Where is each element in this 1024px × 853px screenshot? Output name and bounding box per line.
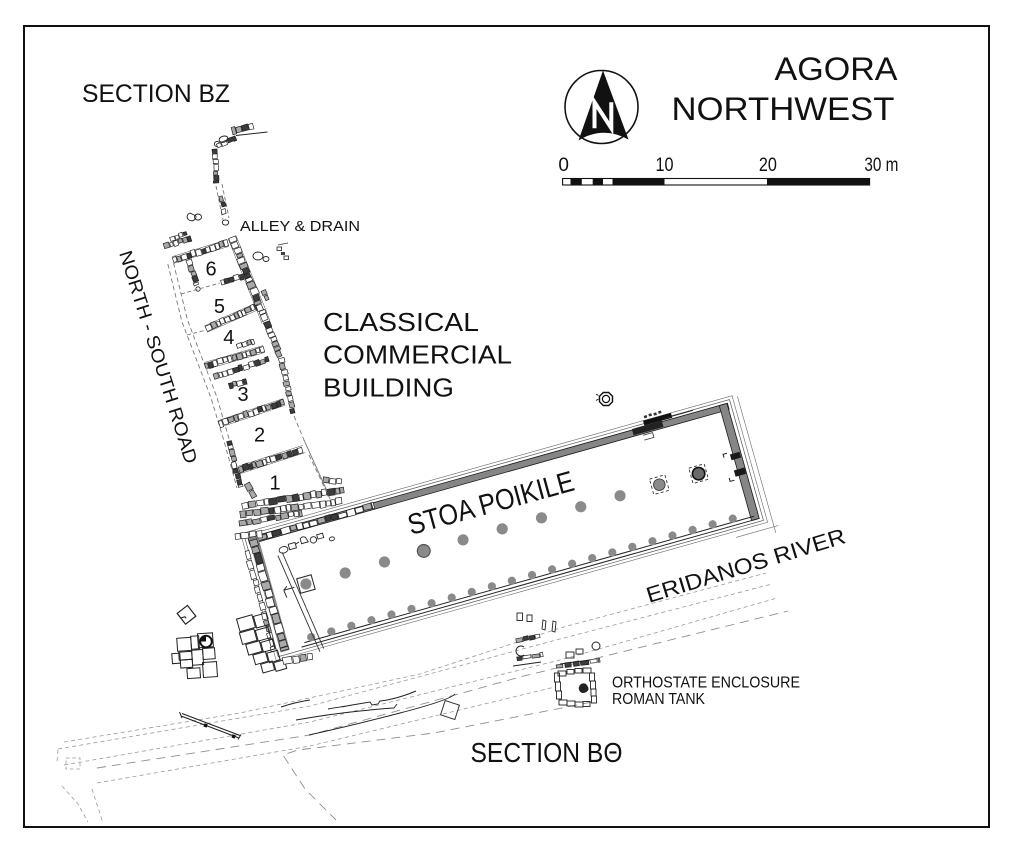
svg-text:6: 6 bbox=[205, 259, 216, 281]
svg-text:20: 20 bbox=[759, 155, 777, 176]
svg-text:NORTHWEST: NORTHWEST bbox=[672, 91, 895, 127]
svg-text:3: 3 bbox=[237, 384, 248, 406]
svg-text:ALLEY & DRAIN: ALLEY & DRAIN bbox=[240, 219, 360, 235]
svg-text:SECTION BZ: SECTION BZ bbox=[82, 80, 230, 108]
svg-text:ROMAN TANK: ROMAN TANK bbox=[612, 691, 706, 708]
svg-text:0: 0 bbox=[558, 155, 569, 176]
svg-text:2: 2 bbox=[254, 425, 265, 447]
svg-text:1: 1 bbox=[269, 473, 280, 495]
svg-text:4: 4 bbox=[223, 327, 234, 349]
svg-text:10: 10 bbox=[656, 155, 674, 176]
svg-text:AGORA: AGORA bbox=[775, 51, 899, 87]
svg-text:5: 5 bbox=[214, 296, 225, 318]
svg-text:COMMERCIAL: COMMERCIAL bbox=[323, 340, 512, 370]
svg-text:SECTION BΘ: SECTION BΘ bbox=[471, 737, 623, 768]
svg-text:ORTHOSTATE ENCLOSURE: ORTHOSTATE ENCLOSURE bbox=[612, 675, 800, 692]
svg-text:BUILDING: BUILDING bbox=[323, 373, 454, 403]
svg-text:CLASSICAL: CLASSICAL bbox=[323, 307, 479, 337]
svg-text:30 m: 30 m bbox=[864, 155, 898, 176]
